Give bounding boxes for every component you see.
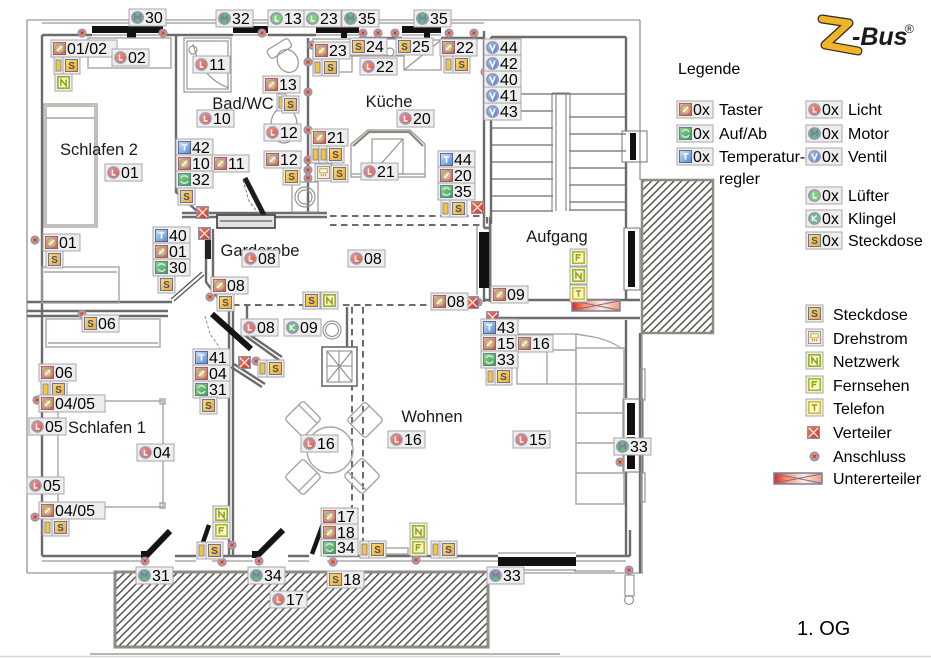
svg-text:Schlafen 1: Schlafen 1 xyxy=(68,419,146,437)
svg-text:34: 34 xyxy=(337,540,355,557)
svg-text:32: 32 xyxy=(192,172,210,189)
svg-text:Aufgang: Aufgang xyxy=(526,228,587,246)
svg-text:06: 06 xyxy=(98,316,116,333)
svg-text:05: 05 xyxy=(43,478,61,495)
svg-text:Steckdose: Steckdose xyxy=(848,233,923,250)
svg-text:21: 21 xyxy=(377,164,395,181)
svg-text:0x: 0x xyxy=(693,126,710,143)
svg-text:Schlafen 2: Schlafen 2 xyxy=(60,141,138,159)
svg-text:35: 35 xyxy=(454,184,472,201)
svg-text:41: 41 xyxy=(209,350,227,367)
svg-text:Wohnen: Wohnen xyxy=(401,408,462,426)
svg-text:Küche: Küche xyxy=(366,93,413,111)
svg-text:22: 22 xyxy=(376,59,394,76)
svg-text:20: 20 xyxy=(413,111,431,128)
svg-text:Taster: Taster xyxy=(719,102,763,119)
svg-text:1. OG: 1. OG xyxy=(797,618,850,640)
svg-text:43: 43 xyxy=(500,104,518,121)
svg-text:08: 08 xyxy=(227,278,245,295)
svg-text:08: 08 xyxy=(258,251,276,268)
svg-text:Telefon: Telefon xyxy=(833,401,885,418)
svg-text:09: 09 xyxy=(507,287,525,304)
svg-text:04/05: 04/05 xyxy=(55,503,95,520)
svg-text:-Bus: -Bus xyxy=(852,23,908,51)
svg-text:15: 15 xyxy=(529,432,547,449)
svg-text:02: 02 xyxy=(128,50,146,67)
svg-text:06: 06 xyxy=(55,365,73,382)
svg-text:12: 12 xyxy=(280,125,298,142)
svg-text:Netzwerk: Netzwerk xyxy=(833,354,901,371)
svg-text:10: 10 xyxy=(213,111,231,128)
svg-text:0x: 0x xyxy=(693,102,710,119)
svg-text:Licht: Licht xyxy=(848,102,882,119)
svg-text:34: 34 xyxy=(264,568,282,585)
svg-text:08: 08 xyxy=(257,320,275,337)
svg-text:Motor: Motor xyxy=(848,126,890,143)
svg-text:32: 32 xyxy=(232,11,250,28)
svg-text:24: 24 xyxy=(366,39,384,56)
svg-text:44: 44 xyxy=(500,40,518,57)
svg-text:42: 42 xyxy=(500,56,518,73)
svg-text:40: 40 xyxy=(169,228,187,245)
svg-text:13: 13 xyxy=(284,11,302,28)
svg-text:17: 17 xyxy=(286,592,304,609)
svg-text:12: 12 xyxy=(280,152,298,169)
svg-text:17: 17 xyxy=(337,509,355,526)
svg-text:04: 04 xyxy=(209,366,227,383)
svg-text:25: 25 xyxy=(412,39,430,56)
svg-text:0x: 0x xyxy=(822,126,839,143)
svg-text:09: 09 xyxy=(300,320,318,337)
svg-text:16: 16 xyxy=(317,436,335,453)
svg-text:18: 18 xyxy=(343,572,361,589)
svg-text:01/02: 01/02 xyxy=(67,41,107,58)
svg-text:11: 11 xyxy=(209,57,226,74)
svg-text:Steckdose: Steckdose xyxy=(833,307,908,324)
svg-text:23: 23 xyxy=(329,43,347,60)
svg-text:0x: 0x xyxy=(822,233,839,250)
svg-text:0x: 0x xyxy=(822,149,839,166)
svg-text:35: 35 xyxy=(430,11,448,28)
svg-text:16: 16 xyxy=(404,432,422,449)
svg-text:01: 01 xyxy=(59,235,77,252)
svg-text:05: 05 xyxy=(45,419,63,436)
svg-text:08: 08 xyxy=(364,251,382,268)
svg-text:01: 01 xyxy=(121,165,139,182)
svg-text:11: 11 xyxy=(228,156,245,173)
svg-text:43: 43 xyxy=(497,320,515,337)
svg-text:Auf/Ab: Auf/Ab xyxy=(719,126,767,143)
svg-text:®: ® xyxy=(905,22,914,36)
svg-text:Verteiler: Verteiler xyxy=(833,425,892,442)
svg-text:42: 42 xyxy=(192,140,210,157)
svg-text:0x: 0x xyxy=(822,211,839,228)
svg-text:04/05: 04/05 xyxy=(55,396,95,413)
svg-text:30: 30 xyxy=(169,260,187,277)
svg-text:16: 16 xyxy=(532,336,550,353)
svg-text:13: 13 xyxy=(279,77,297,94)
svg-text:33: 33 xyxy=(497,352,515,369)
svg-text:0x: 0x xyxy=(693,149,710,166)
svg-text:Ventil: Ventil xyxy=(848,149,887,166)
svg-text:04: 04 xyxy=(153,445,171,462)
svg-text:30: 30 xyxy=(145,10,163,27)
svg-text:33: 33 xyxy=(630,439,648,456)
svg-text:21: 21 xyxy=(327,130,345,147)
svg-text:33: 33 xyxy=(503,568,521,585)
svg-text:44: 44 xyxy=(454,152,472,169)
svg-text:35: 35 xyxy=(358,11,376,28)
svg-text:20: 20 xyxy=(454,168,472,185)
svg-text:10: 10 xyxy=(192,156,210,173)
svg-text:01: 01 xyxy=(169,244,187,261)
svg-text:Drehstrom: Drehstrom xyxy=(833,331,908,348)
svg-text:40: 40 xyxy=(500,72,518,89)
svg-text:Lüfter: Lüfter xyxy=(848,188,890,205)
svg-text:Anschluss: Anschluss xyxy=(833,449,906,466)
svg-text:31: 31 xyxy=(209,382,227,399)
svg-text:23: 23 xyxy=(320,11,338,28)
svg-text:41: 41 xyxy=(500,88,518,105)
svg-text:regler: regler xyxy=(719,171,761,188)
svg-text:31: 31 xyxy=(152,568,170,585)
svg-text:Fernsehen: Fernsehen xyxy=(833,378,910,395)
svg-text:Legende: Legende xyxy=(678,61,740,78)
svg-text:0x: 0x xyxy=(822,188,839,205)
svg-text:0x: 0x xyxy=(822,102,839,119)
svg-text:15: 15 xyxy=(497,336,515,353)
svg-text:Klingel: Klingel xyxy=(848,211,896,228)
svg-text:Untererteiler: Untererteiler xyxy=(833,471,922,488)
svg-text:08: 08 xyxy=(447,294,465,311)
svg-text:Temperatur-: Temperatur- xyxy=(719,149,805,166)
svg-text:22: 22 xyxy=(456,40,474,57)
